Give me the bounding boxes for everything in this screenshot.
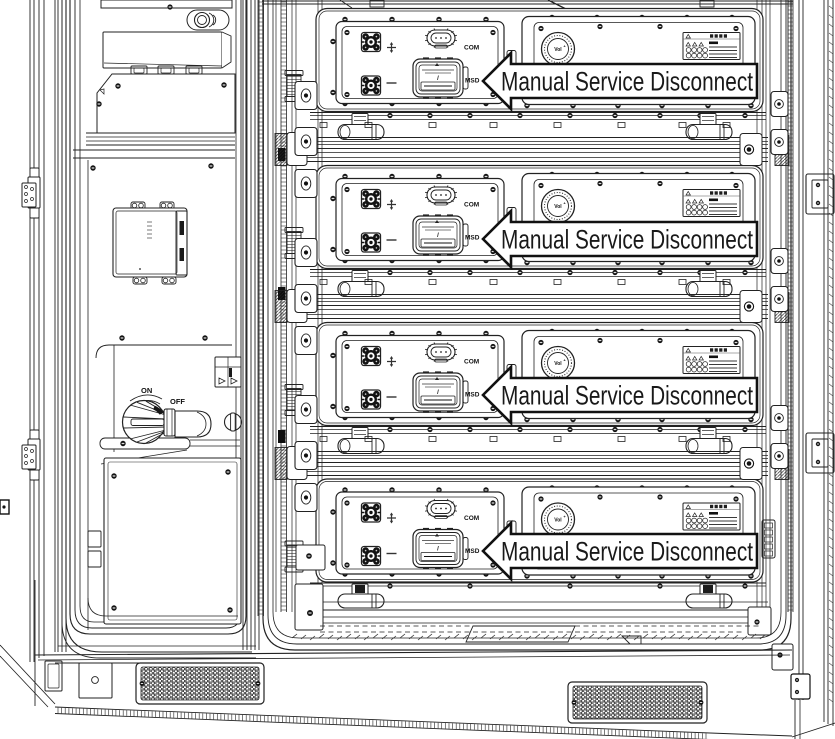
svg-text:MSD: MSD bbox=[465, 392, 480, 399]
svg-text:ON: ON bbox=[141, 386, 152, 395]
svg-text:COM: COM bbox=[464, 359, 479, 366]
svg-text:Manual Service Disconnect: Manual Service Disconnect bbox=[501, 381, 753, 411]
svg-text:OFF: OFF bbox=[170, 397, 185, 406]
svg-text:Manual Service Disconnect: Manual Service Disconnect bbox=[501, 537, 753, 567]
svg-text:Vol: Vol bbox=[554, 518, 562, 524]
svg-text:Vol: Vol bbox=[554, 204, 562, 210]
svg-text:MSD: MSD bbox=[465, 78, 480, 85]
svg-text:MSD: MSD bbox=[465, 235, 480, 242]
svg-text:COM: COM bbox=[464, 45, 479, 52]
svg-text:Vol: Vol bbox=[554, 361, 562, 367]
svg-text:COM: COM bbox=[464, 515, 479, 522]
svg-text:COM: COM bbox=[464, 202, 479, 209]
svg-text:MSD: MSD bbox=[465, 548, 480, 555]
svg-text:Manual Service Disconnect: Manual Service Disconnect bbox=[501, 225, 753, 255]
svg-text:Manual Service Disconnect: Manual Service Disconnect bbox=[501, 67, 753, 97]
svg-text:Vol: Vol bbox=[554, 47, 562, 53]
